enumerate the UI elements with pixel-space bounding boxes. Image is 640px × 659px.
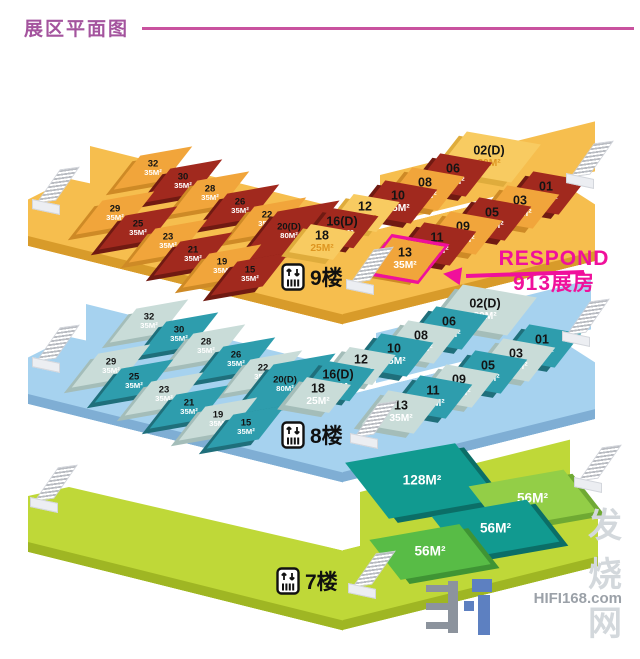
hifi168-logo: [426, 579, 504, 637]
booth-size: 128M²: [403, 473, 442, 488]
floor-7-tag: 7楼: [276, 566, 338, 596]
escalator-icon: [562, 300, 610, 348]
exhibition-floor-plan: 展区平面图 3235M²3035M²2835M²2635M²2235M²20(D…: [0, 0, 640, 659]
elevator-icon: [281, 263, 305, 291]
respond-line1: RESPOND: [478, 246, 630, 271]
escalator-icon: [32, 168, 80, 216]
watermark-name: 发烧网: [588, 498, 624, 645]
annotation-arrow-head: [442, 265, 462, 285]
elevator-icon: [276, 567, 300, 595]
floor-label: 8楼: [310, 420, 343, 450]
booth-size: 56M²: [414, 544, 445, 559]
floor-label: 7楼: [305, 566, 338, 596]
elevator-icon: [281, 421, 305, 449]
escalator-icon: [30, 466, 78, 514]
floor-8-tag: 8楼: [281, 420, 343, 450]
escalator-icon: [346, 248, 394, 296]
escalator-icon: [32, 326, 80, 374]
escalator-icon: [350, 402, 398, 450]
floor-7: 128M²56M²56M²56M² 7楼: [0, 0, 640, 659]
escalator-icon: [574, 446, 622, 494]
escalator-icon: [566, 142, 614, 190]
floor-9-tag: 9楼: [281, 262, 343, 292]
booth-size: 56M²: [480, 521, 511, 536]
escalator-icon: [348, 552, 396, 600]
floor-label: 9楼: [310, 262, 343, 292]
